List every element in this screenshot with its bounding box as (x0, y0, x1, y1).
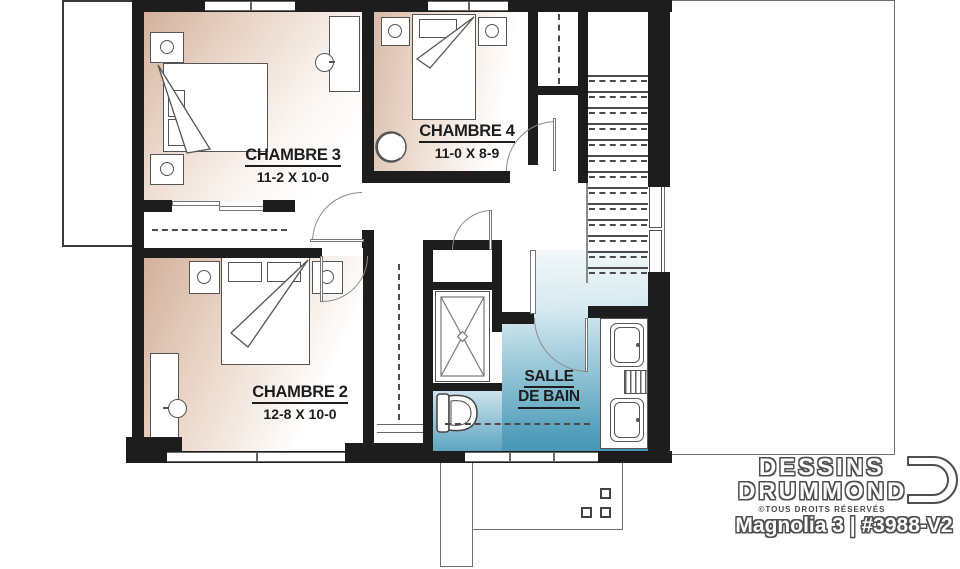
ceiling-break-line (445, 423, 590, 425)
room-label-chambre2: CHAMBRE 2 12-8 X 10-0 (230, 383, 370, 422)
wall (362, 0, 374, 183)
stair-tread (588, 187, 648, 203)
stair-tread (588, 235, 648, 251)
room-dims: 11-0 X 8-9 (397, 145, 537, 161)
window (167, 452, 345, 462)
wall (345, 443, 427, 453)
wall (132, 248, 322, 258)
wall (648, 0, 670, 187)
wall (423, 282, 502, 290)
door-leaf (553, 118, 556, 171)
hall-strip (502, 250, 532, 312)
stair-tread (588, 171, 648, 187)
window (428, 1, 508, 11)
sink-drain (636, 418, 640, 422)
window (465, 452, 598, 462)
sliding-closet-door (219, 206, 267, 211)
wall (144, 200, 172, 212)
stair-tread (588, 123, 648, 139)
roof-outline-right (664, 0, 895, 455)
vanity-drawers-icon (624, 370, 648, 394)
lamp-icon (160, 162, 174, 176)
stair-tread (588, 91, 648, 107)
stair-tread (588, 203, 648, 219)
wall (538, 86, 588, 95)
room-name: CHAMBRE 2 (252, 383, 347, 404)
deck-stair-outline (440, 452, 473, 567)
room-label-chambre3: CHAMBRE 3 11-2 X 10-0 (223, 146, 363, 185)
blanket-fold-icon (410, 12, 480, 72)
stair-tread (588, 139, 648, 155)
roof-outline-left (62, 0, 138, 247)
staircase-treads (588, 75, 648, 283)
door-leaf (585, 318, 588, 372)
plan-title: Magnolia 3 | #3988-V2 (730, 514, 958, 538)
room-dims: 11-2 X 10-0 (223, 169, 363, 185)
wall (423, 240, 433, 451)
deck-post-icon (581, 507, 592, 518)
stair-tread (588, 219, 648, 235)
deck-post-icon (600, 507, 611, 518)
closet-rod (398, 264, 400, 420)
toilet-icon (436, 388, 490, 438)
lamp-icon (485, 24, 499, 38)
lamp-icon (388, 24, 402, 38)
door-leaf (310, 239, 364, 242)
room-label-salle-de-bain: SALLE DE BAIN (503, 368, 595, 409)
wall (588, 306, 650, 318)
wall (423, 383, 502, 391)
room-label-chambre4: CHAMBRE 4 11-0 X 8-9 (397, 122, 537, 161)
window (205, 1, 295, 11)
door-leaf (489, 210, 492, 250)
door-swing-arc (452, 210, 492, 250)
brand-word-1: DESSINS (738, 456, 906, 480)
brand-logo-text: DESSINS DRUMMOND (738, 456, 906, 504)
stair-railing (649, 186, 662, 228)
door-partition-line (530, 250, 536, 314)
stair-tread (588, 155, 648, 171)
blanket-fold-icon (225, 255, 315, 350)
closet-rod (152, 229, 287, 231)
stair-tread (588, 107, 648, 123)
floor-plan-canvas: CHAMBRE 3 11-2 X 10-0 CHAMBRE 4 11-0 X 8… (0, 0, 960, 569)
blanket-fold-icon (150, 60, 220, 160)
room-name: CHAMBRE 4 (419, 122, 514, 143)
room-name-line2: DE BAIN (518, 388, 580, 408)
desk-icon (329, 16, 360, 92)
closet-shelf (377, 424, 423, 433)
wall (492, 312, 534, 324)
lamp-icon (197, 270, 211, 284)
stair-tread (588, 251, 648, 267)
stair-railing (649, 230, 662, 273)
lamp-icon (160, 40, 174, 54)
room-dims: 12-8 X 10-0 (230, 406, 370, 422)
brand-rights-notice: ©TOUS DROITS RÉSERVÉS (738, 505, 906, 514)
chair-icon (168, 399, 187, 418)
deck-post-icon (600, 488, 611, 499)
wall (263, 200, 295, 212)
chair-stem (329, 61, 335, 63)
stair-tread (588, 267, 648, 283)
stair-tread (588, 75, 648, 91)
door-leaf (320, 256, 323, 302)
room-name-line1: SALLE (524, 368, 573, 388)
shower-x-icon (435, 291, 490, 382)
brand-word-2: DRUMMOND (738, 480, 906, 504)
sliding-closet-door (172, 201, 220, 206)
wall (648, 272, 670, 463)
wall (132, 0, 144, 463)
wall (362, 171, 510, 183)
chair-stem (163, 407, 169, 409)
brand-d-logo-icon (900, 456, 952, 506)
room-name: CHAMBRE 3 (245, 146, 340, 167)
sink-drain (636, 343, 640, 347)
desk-icon (150, 353, 179, 439)
closet-rod (558, 14, 560, 84)
